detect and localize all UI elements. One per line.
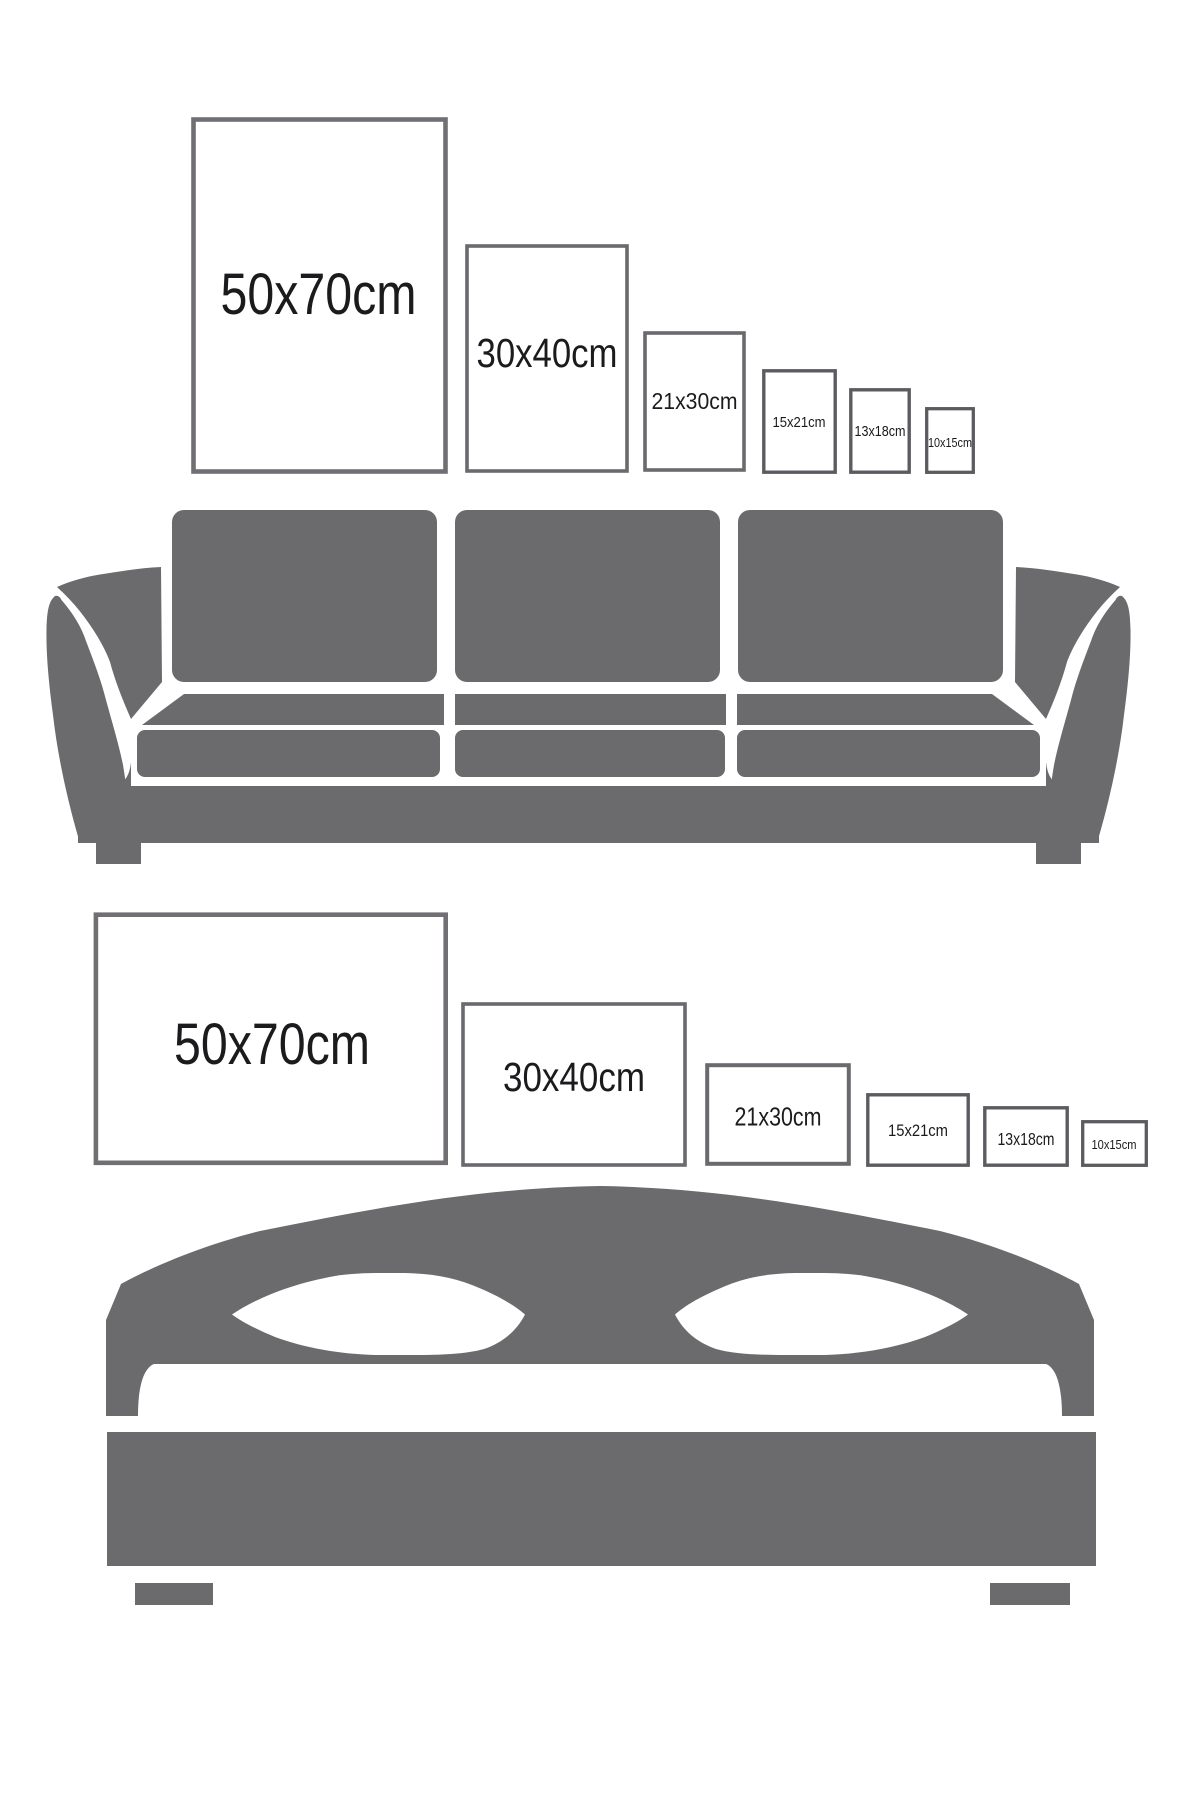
svg-text:13x18cm: 13x18cm	[855, 424, 906, 440]
svg-text:30x40cm: 30x40cm	[503, 1054, 645, 1100]
svg-text:15x21cm: 15x21cm	[773, 415, 826, 431]
svg-text:30x40cm: 30x40cm	[477, 330, 618, 376]
svg-text:50x70cm: 50x70cm	[221, 262, 417, 327]
svg-text:10x15cm: 10x15cm	[928, 435, 972, 450]
svg-text:13x18cm: 13x18cm	[998, 1129, 1055, 1149]
svg-text:50x70cm: 50x70cm	[174, 1012, 370, 1077]
svg-text:21x30cm: 21x30cm	[652, 388, 738, 414]
svg-text:10x15cm: 10x15cm	[1092, 1137, 1137, 1152]
svg-text:21x30cm: 21x30cm	[735, 1102, 822, 1132]
svg-text:15x21cm: 15x21cm	[888, 1122, 948, 1140]
